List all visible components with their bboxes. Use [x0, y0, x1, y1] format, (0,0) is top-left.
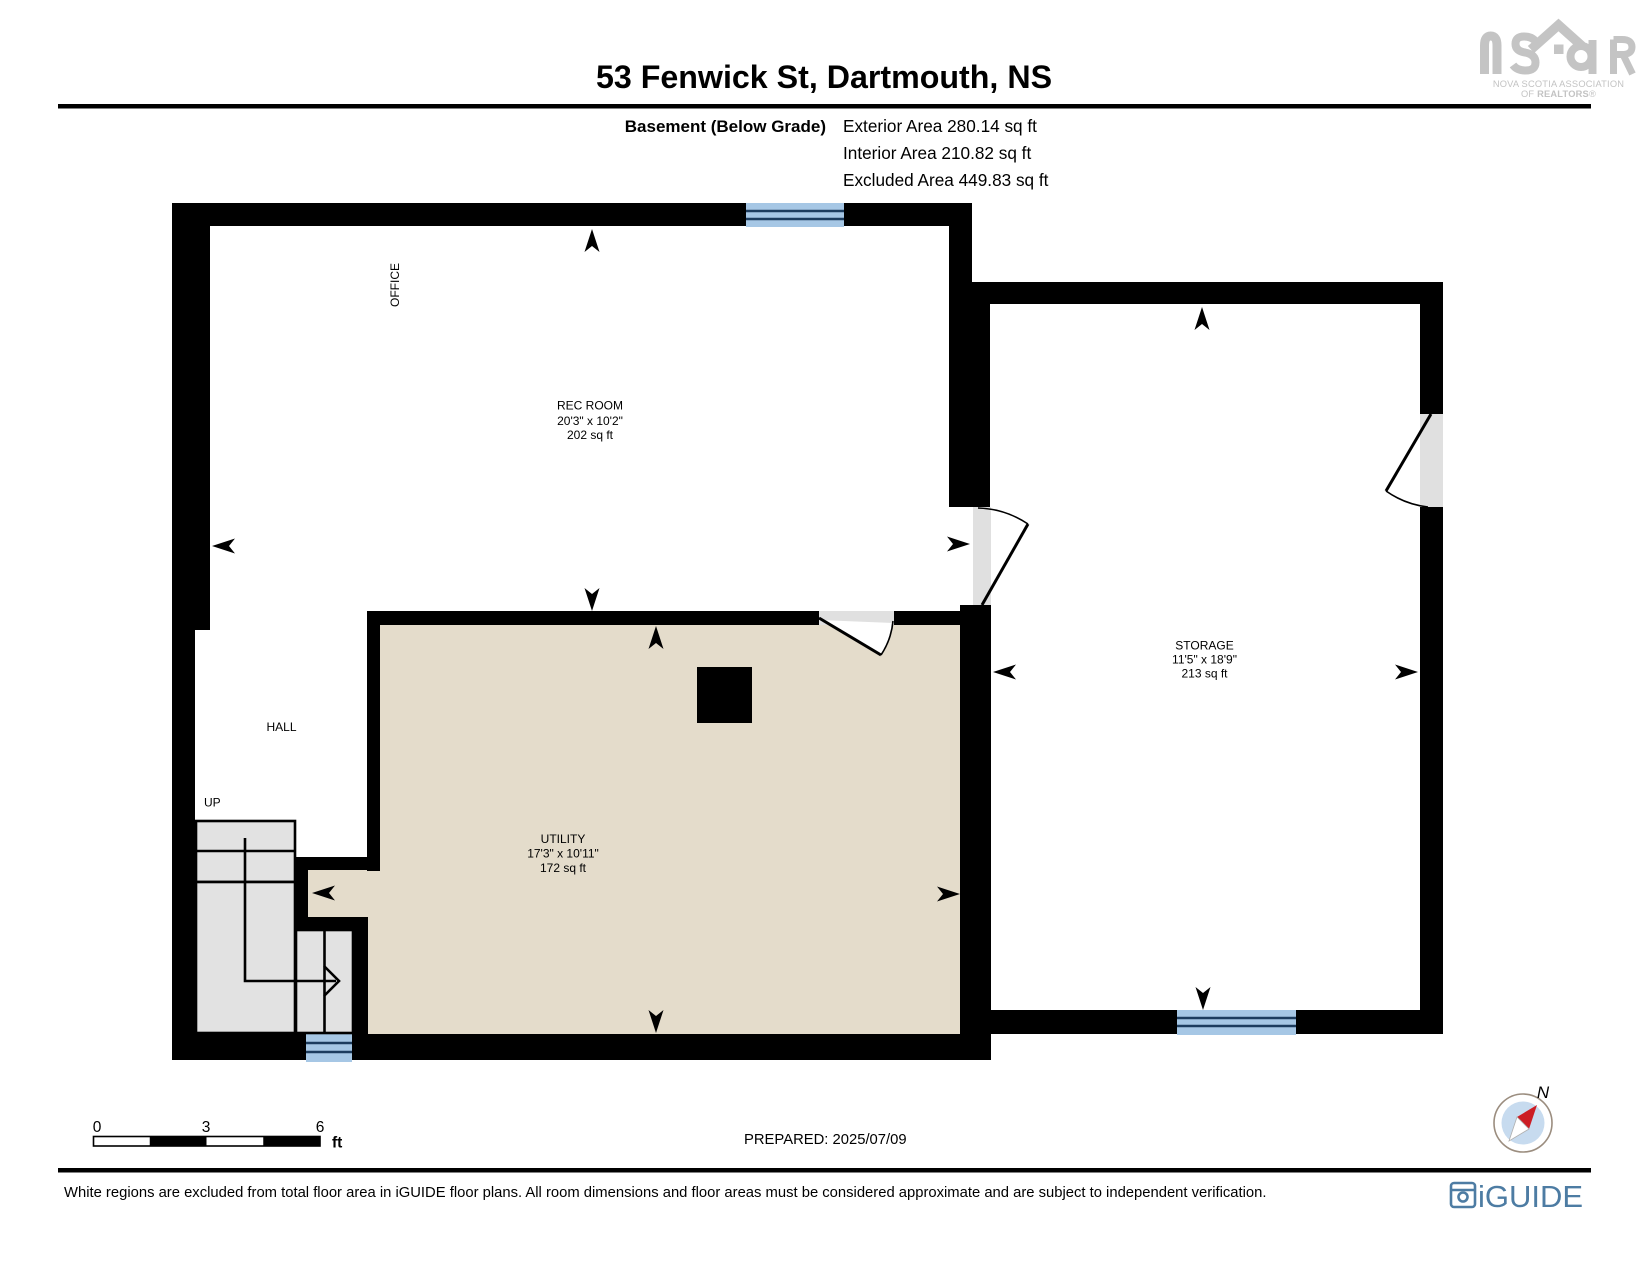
svg-text:11'5" x 18'9": 11'5" x 18'9"	[1172, 653, 1237, 667]
svg-text:UTILITY: UTILITY	[541, 832, 586, 846]
svg-text:172 sq ft: 172 sq ft	[540, 861, 587, 875]
svg-text:20'3" x 10'2": 20'3" x 10'2"	[557, 414, 623, 428]
svg-text:White regions are excluded fro: White regions are excluded from total fl…	[64, 1185, 1266, 1201]
svg-text:17'3" x 10'11": 17'3" x 10'11"	[527, 847, 599, 861]
svg-text:iGUIDE: iGUIDE	[1478, 1179, 1583, 1214]
svg-text:Exterior Area 280.14 sq ft: Exterior Area 280.14 sq ft	[843, 116, 1037, 136]
svg-text:Interior Area 210.82 sq ft: Interior Area 210.82 sq ft	[843, 143, 1031, 163]
svg-text:REC ROOM: REC ROOM	[557, 399, 623, 413]
svg-text:NOVA SCOTIA ASSOCIATION: NOVA SCOTIA ASSOCIATION	[1493, 79, 1624, 89]
svg-text:HALL: HALL	[266, 720, 296, 734]
svg-text:PREPARED: 2025/07/09: PREPARED: 2025/07/09	[744, 1132, 907, 1148]
svg-text:0: 0	[93, 1119, 102, 1136]
svg-text:53 Fenwick St, Dartmouth, NS: 53 Fenwick St, Dartmouth, NS	[596, 59, 1052, 95]
svg-text:N: N	[1537, 1083, 1550, 1102]
svg-text:Basement (Below Grade): Basement (Below Grade)	[625, 117, 826, 136]
svg-text:213 sq ft: 213 sq ft	[1181, 666, 1228, 680]
svg-text:OFFICE: OFFICE	[388, 263, 402, 307]
svg-text:3: 3	[202, 1119, 211, 1136]
svg-text:Excluded Area 449.83 sq ft: Excluded Area 449.83 sq ft	[843, 170, 1049, 190]
svg-text:UP: UP	[204, 796, 221, 810]
svg-text:OF REALTORS®: OF REALTORS®	[1521, 89, 1596, 99]
svg-text:202 sq ft: 202 sq ft	[567, 428, 614, 442]
svg-text:6: 6	[316, 1119, 325, 1136]
svg-text:ft: ft	[332, 1135, 342, 1152]
svg-text:STORAGE: STORAGE	[1175, 639, 1233, 653]
